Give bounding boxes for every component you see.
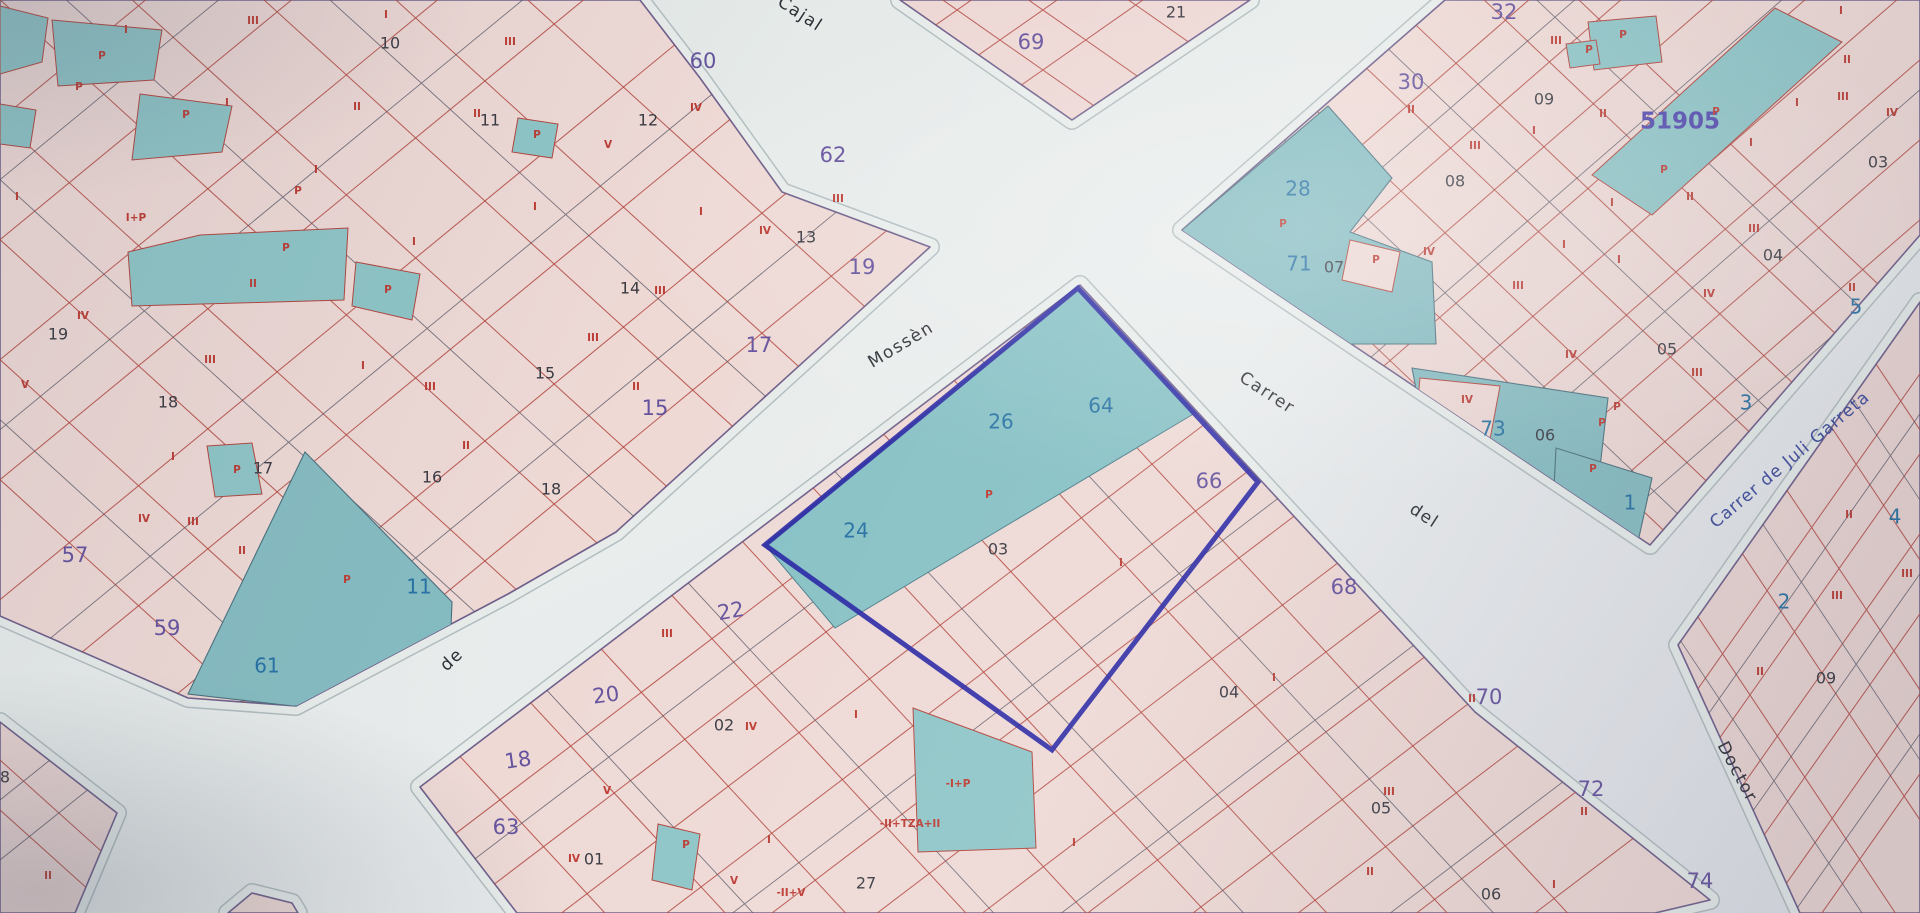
parcel-label: 74 — [1687, 869, 1714, 893]
parcel-label: III — [504, 36, 516, 48]
parcel-label: 63 — [493, 815, 520, 839]
parcel-label: 17 — [746, 333, 773, 357]
parcel-label: 3 — [1740, 391, 1753, 415]
parcel-label: 06 — [1481, 885, 1501, 904]
parcel-label: I — [1839, 5, 1843, 17]
parcel-label: 69 — [1018, 30, 1045, 54]
parcel-label: 03 — [1868, 153, 1888, 172]
parcel-label: I — [384, 9, 388, 21]
parcel-label: 02 — [714, 716, 734, 735]
parcel-label: 03 — [988, 540, 1008, 559]
parcel-label: IV — [1423, 246, 1436, 258]
parcel-label: I — [1532, 125, 1536, 137]
parcel-label: IV — [690, 102, 703, 114]
parcel-label: III — [1691, 367, 1703, 379]
parcel-label: 61 — [254, 654, 279, 678]
parcel-label: 09 — [1816, 669, 1836, 688]
parcel-label: II — [462, 440, 470, 452]
parcel-label: III — [1837, 91, 1849, 103]
parcel-label: 73 — [1480, 417, 1505, 441]
parcel-label: 16 — [422, 468, 442, 487]
parcel-label: 06 — [1535, 426, 1555, 445]
parcel-label: III — [587, 332, 599, 344]
parcel-label: I — [1610, 197, 1614, 209]
parcel-label: 59 — [154, 616, 181, 640]
teal-parcel[interactable] — [1566, 40, 1600, 68]
parcel-label: P — [1372, 254, 1380, 266]
parcel-label: P — [1660, 164, 1668, 176]
parcel-label: 12 — [638, 111, 658, 130]
parcel-label: P — [1279, 218, 1287, 230]
parcel-label: 4 — [1889, 505, 1902, 529]
parcel-label: V — [21, 379, 30, 391]
parcel-label: 21 — [1166, 3, 1186, 22]
parcel-label: P — [682, 839, 690, 851]
parcel-label: IV — [77, 310, 90, 322]
parcel-label: 64 — [1088, 394, 1113, 418]
parcel-label: P — [1712, 106, 1720, 118]
parcel-label: II — [1366, 866, 1374, 878]
parcel-label: P — [343, 574, 351, 586]
parcel-label: I — [1072, 837, 1076, 849]
parcel-label: III — [832, 193, 844, 205]
parcel-label: IV — [1565, 349, 1578, 361]
parcel-label: III — [1383, 786, 1395, 798]
parcel-label: 68 — [1331, 575, 1358, 599]
teal-parcel[interactable] — [52, 20, 162, 86]
parcel-label: 04 — [1763, 246, 1783, 265]
parcel-label: 15 — [642, 396, 669, 420]
parcel-label: III — [1831, 590, 1843, 602]
parcel-label: I — [1552, 879, 1556, 891]
parcel-label: 18 — [158, 393, 178, 412]
parcel-label: 13 — [796, 228, 816, 247]
parcel-label: I — [533, 201, 537, 213]
parcel-label: 09 — [1534, 90, 1554, 109]
parcel-label: I — [1617, 254, 1621, 266]
parcel-label: 19 — [48, 325, 68, 344]
parcel-label: 15 — [535, 364, 555, 383]
parcel-label: II — [353, 101, 361, 113]
parcel-label: 01 — [584, 850, 604, 869]
parcel-label: III — [654, 285, 666, 297]
parcel-label: -II+V — [776, 887, 806, 899]
parcel-label: IV — [138, 513, 151, 525]
parcel-label: IV — [745, 721, 758, 733]
parcel-label: P — [182, 109, 190, 121]
city-block-bottom-tiny[interactable] — [228, 893, 298, 913]
parcel-label: 14 — [620, 279, 640, 298]
parcel-label: 32 — [1491, 0, 1518, 24]
parcel-label: I — [171, 451, 175, 463]
parcel-label: 28 — [1285, 177, 1310, 201]
parcel-label: 08 — [1445, 172, 1465, 191]
parcel-label: 19 — [849, 255, 876, 279]
parcel-label: 26 — [988, 410, 1013, 434]
parcel-label: P — [75, 81, 83, 93]
parcel-label: P — [1585, 44, 1593, 56]
parcel-label: II — [1848, 282, 1856, 294]
parcel-label: 30 — [1398, 70, 1425, 94]
parcel-label: I — [15, 191, 19, 203]
parcel-label: V — [603, 785, 612, 797]
parcel-label: 05 — [1657, 340, 1677, 359]
parcel-label: II — [1686, 191, 1694, 203]
parcel-label: 62 — [820, 143, 847, 167]
parcel-label: I — [1562, 239, 1566, 251]
parcel-label: I — [1749, 137, 1753, 149]
parcel-label: 27 — [856, 874, 876, 893]
parcel-label: P — [533, 129, 541, 141]
parcel-label: I — [1795, 97, 1799, 109]
parcel-label: IV — [1886, 107, 1899, 119]
parcel-label: II — [1580, 806, 1588, 818]
teal-parcel[interactable] — [652, 824, 700, 890]
parcel-label: 60 — [690, 49, 717, 73]
parcel-label: -II+TZA+II — [880, 818, 940, 830]
parcel-label: 51905 — [1640, 109, 1720, 135]
teal-parcel[interactable] — [132, 94, 232, 160]
parcel-label: III — [1901, 568, 1913, 580]
parcel-label: I — [1272, 672, 1276, 684]
parcel-label: 10 — [380, 34, 400, 53]
parcel-label: IV — [568, 853, 581, 865]
parcel-label: P — [1598, 417, 1606, 429]
parcel-label: III — [204, 354, 216, 366]
parcel-label: I — [361, 360, 365, 372]
parcel-label: 71 — [1286, 252, 1311, 276]
parcel-label: I — [124, 24, 128, 36]
parcel-label: III — [1748, 223, 1760, 235]
parcel-label: I+P — [126, 212, 147, 224]
parcel-label: P — [294, 185, 302, 197]
parcel-label: I — [767, 834, 771, 846]
parcel-label: V — [604, 139, 613, 151]
parcel-label: 2 — [1778, 590, 1791, 614]
parcel-label: V — [730, 875, 739, 887]
parcel-label: P — [282, 242, 290, 254]
parcel-label: III — [1512, 280, 1524, 292]
parcel-label: 05 — [1371, 799, 1391, 818]
parcel-label: 70 — [1476, 685, 1503, 709]
parcel-label: P — [985, 489, 993, 501]
parcel-label: I — [225, 97, 229, 109]
parcel-label: 11 — [406, 575, 431, 599]
parcel-label: P — [1589, 463, 1597, 475]
parcel-label: IV — [1461, 394, 1474, 406]
parcel-label: I — [314, 164, 318, 176]
parcel-label: 24 — [843, 519, 868, 543]
parcel-label: II — [1407, 104, 1415, 116]
parcel-label: 57 — [62, 543, 89, 567]
parcel-label: I — [1119, 557, 1123, 569]
parcel-label: II — [1756, 666, 1764, 678]
parcel-label: 5 — [1850, 295, 1863, 319]
parcel-label: II — [238, 545, 246, 557]
parcel-label: I — [854, 709, 858, 721]
parcel-label: P — [1613, 401, 1621, 413]
parcel-label: II — [1845, 509, 1853, 521]
parcel-label: III — [1469, 140, 1481, 152]
parcel-label: II — [1843, 54, 1851, 66]
parcel-label: 18 — [503, 746, 533, 773]
parcel-label: IV — [759, 225, 772, 237]
parcel-label: III — [1550, 35, 1562, 47]
parcel-label: 04 — [1219, 683, 1239, 702]
parcel-label: 72 — [1578, 777, 1605, 801]
parcel-label: III — [661, 628, 673, 640]
parcel-label: I — [699, 206, 703, 218]
parcel-label: 66 — [1196, 469, 1223, 493]
parcel-label: IV — [1703, 288, 1716, 300]
parcel-label: I — [412, 236, 416, 248]
parcel-label: III — [187, 516, 199, 528]
parcel-label: II — [44, 870, 52, 882]
parcel-label: 22 — [716, 597, 746, 625]
cadastral-map: CajalMossèndeCarrerdelCarrer de Juli Gar… — [0, 0, 1920, 913]
parcel-label: 07 — [1324, 258, 1344, 277]
parcel-label: P — [1619, 29, 1627, 41]
parcel-label: 20 — [591, 681, 621, 708]
parcel-label: III — [247, 15, 259, 27]
parcel-label: 1 — [1624, 491, 1637, 515]
parcel-label: P — [384, 284, 392, 296]
cadastral-map-page: CajalMossèndeCarrerdelCarrer de Juli Gar… — [0, 0, 1920, 913]
parcel-label: P — [233, 464, 241, 476]
parcel-label: P — [98, 50, 106, 62]
parcel-label: 11 — [480, 111, 500, 130]
parcel-label: II — [1599, 108, 1607, 120]
parcel-label: II — [632, 381, 640, 393]
parcel-label: -I+P — [946, 778, 971, 790]
teal-parcel[interactable] — [0, 104, 36, 148]
parcel-label: 8 — [0, 768, 10, 787]
parcel-label: 17 — [253, 459, 273, 478]
parcel-label: 18 — [541, 480, 561, 499]
parcel-label: II — [249, 278, 257, 290]
parcel-label: III — [424, 381, 436, 393]
